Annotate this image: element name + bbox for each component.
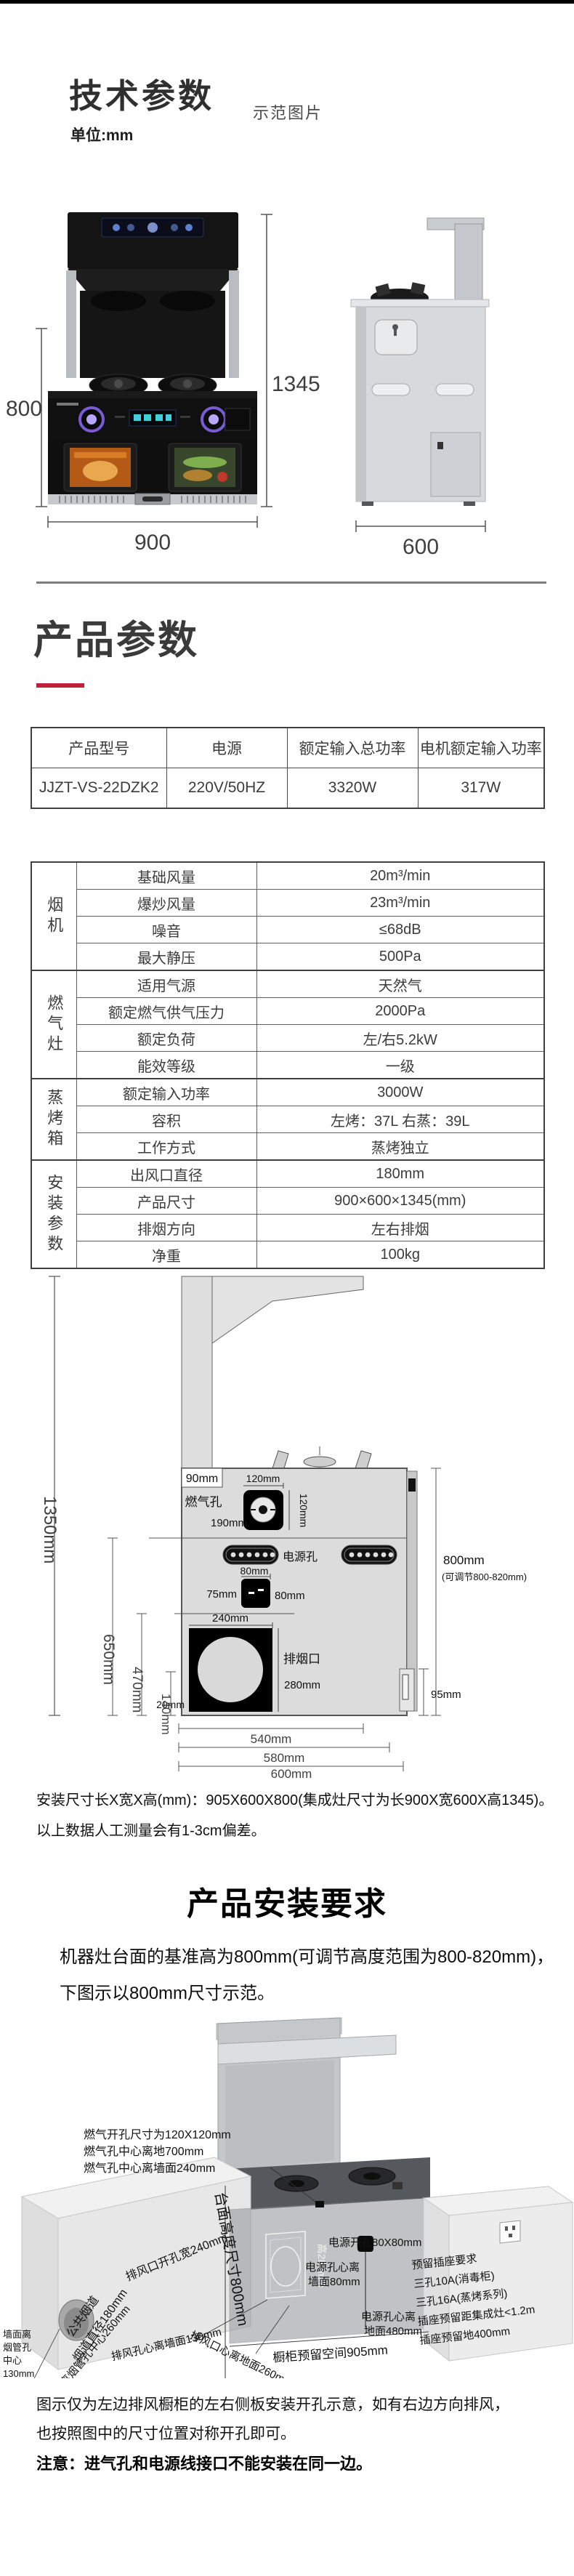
gas-height-label: 120mm [298, 1494, 310, 1528]
dim-label-470: 470mm [129, 1667, 145, 1712]
table-row: JJZT-VS-22DZK2 220V/50HZ 3320W 317W [31, 768, 544, 809]
spec-label: 产品尺寸 [76, 1188, 256, 1215]
base-vent [48, 494, 257, 504]
socket-icon [500, 2221, 520, 2243]
dim-label-650: 650mm [100, 1634, 117, 1685]
wall-flue-3: 中心 [3, 2355, 22, 2366]
col-header: 电机额定输入功率 [418, 728, 544, 768]
power-floor-label-1: 电源孔心离 [361, 2311, 416, 2323]
dim-label-580: 580mm [264, 1751, 305, 1765]
table-header-row: 产品型号 电源 额定输入总功率 电机额定输入功率 [31, 728, 544, 768]
table-row: 烟机 基础风量 20m³/min [31, 862, 544, 890]
table-row: 燃气灶 适用气源 天然气 [31, 970, 544, 998]
gas-note-3: 燃气孔中心离墙面240mm [84, 2162, 215, 2175]
spec-label: 排烟方向 [76, 1215, 256, 1241]
spec-label: 能效等级 [76, 1052, 256, 1079]
install-para-1: 机器灶台面的基准高为800mm(可调节高度范围为800-820mm)， [60, 1942, 554, 1968]
side-view-product-image [351, 218, 489, 506]
page: 技术参数 示范图片 单位:mm [0, 0, 574, 2576]
oven-doors [48, 440, 257, 494]
col-header: 产品型号 [31, 728, 166, 768]
front-view-product-image [48, 212, 257, 504]
table-row: 最大静压500Pa [31, 943, 544, 971]
installation-3d-diagram: 燃气开孔尺寸为120X120mm 燃气孔中心离地700mm 燃气孔中心离墙面24… [0, 2015, 574, 2378]
spec-value: 23m³/min [256, 890, 544, 917]
gas-note-2: 燃气孔中心离地700mm [84, 2145, 203, 2158]
table-row: 噪音≤68dB [31, 917, 544, 943]
spec-value: 天然气 [256, 970, 544, 998]
dim-label-600b: 600mm [271, 1767, 312, 1779]
burner-profile [272, 1446, 371, 1468]
power-right-label: 80mm [275, 1590, 305, 1602]
top-black-bar [0, 0, 574, 4]
page-subtitle: 示范图片 [253, 100, 323, 124]
spec-label: 基础风量 [76, 862, 256, 890]
dim-label-95: 95mm [431, 1689, 461, 1701]
table-row: 额定燃气供气压力2000Pa [31, 998, 544, 1025]
power-hole-label: 电源孔 [283, 1550, 318, 1563]
spec-value: 20m³/min [256, 862, 544, 890]
table-row: 能效等级一级 [31, 1052, 544, 1079]
dim-line-650 [108, 1538, 118, 1715]
gas-note-1: 燃气开孔尺寸为120X120mm [84, 2128, 231, 2141]
spec-label: 额定燃气供气压力 [76, 998, 256, 1025]
col-header: 额定输入总功率 [287, 728, 418, 768]
product-params-title: 产品参数 [33, 608, 199, 665]
col-header: 电源 [166, 728, 287, 768]
counter-height-label: 800mm [443, 1553, 485, 1567]
spec-value: ≤68dB [256, 917, 544, 943]
hood-canopy [212, 1276, 363, 1343]
power-left-label: 75mm [206, 1588, 237, 1601]
dim-line-600 [356, 520, 485, 532]
dim-label-90: 90mm [186, 1473, 218, 1485]
spec-value: 左右排烟 [256, 1215, 544, 1241]
dim-label-600: 600 [403, 535, 439, 559]
spec-value: 900×600×1345(mm) [256, 1188, 544, 1215]
spec-label: 适用气源 [76, 970, 256, 998]
footer-note-2: 也按照图中的尺寸位置对称开孔即可。 [36, 2422, 296, 2444]
category-hood: 烟机 [42, 896, 65, 937]
spec-value: 2000Pa [256, 998, 544, 1025]
spec-value: 蒸烤独立 [256, 1133, 544, 1161]
hood-column [182, 1276, 212, 1468]
spec-value: 一级 [256, 1052, 544, 1079]
wall-flue-4: 130mm [3, 2368, 34, 2378]
model-value: JJZT-VS-22DZK2 [31, 768, 166, 809]
spec-value: 左/右5.2kW [256, 1025, 544, 1052]
power-supply-value: 220V/50HZ [166, 768, 287, 809]
main-spec-table: 产品型号 电源 额定输入总功率 电机额定输入功率 JJZT-VS-22DZK2 … [31, 727, 545, 809]
power-open-label: 电源开孔80X80mm [328, 2237, 421, 2249]
drawing-note-2: 以上数据人工测量会有1-3cm偏差。 [36, 1819, 266, 1840]
footer-warning: 注意：进气孔和电源线接口不能安装在同一边。 [36, 2451, 372, 2474]
table-row: 额定负荷左/右5.2kW [31, 1025, 544, 1052]
spec-value: 500Pa [256, 943, 544, 971]
installation-drawing: 1350mm 90mm 燃气孔 120mm 190mm 120mm [33, 1271, 541, 1779]
red-underline [36, 683, 84, 688]
table-row: 工作方式蒸烤独立 [31, 1133, 544, 1161]
detail-spec-table: 烟机 基础风量 20m³/min 爆炒风量23m³/min 噪音≤68dB 最大… [31, 861, 545, 1269]
dim-label-1345: 1345 [272, 372, 320, 396]
section-divider [36, 581, 546, 584]
table-row: 产品尺寸900×600×1345(mm) [31, 1188, 544, 1215]
table-row: 容积左烤：37L 右蒸：39L [31, 1106, 544, 1133]
dim-label-540: 540mm [251, 1732, 292, 1746]
spec-label: 净重 [76, 1241, 256, 1269]
dim-label-140: 140mm [159, 1694, 173, 1735]
unit-label: 单位:mm [70, 124, 133, 145]
table-row: 安装参数 出风口直径 180mm [31, 1160, 544, 1188]
spec-value: 左烤：37L 右蒸：39L [256, 1106, 544, 1133]
oval-vent-right [341, 1545, 397, 1564]
spec-value: 3000W [256, 1079, 544, 1106]
counter-height-note: (可调节800-820mm) [442, 1571, 527, 1582]
spec-label: 出风口直径 [76, 1160, 256, 1188]
spec-label: 工作方式 [76, 1133, 256, 1161]
spec-value: 180mm [256, 1160, 544, 1188]
spec-label: 容积 [76, 1106, 256, 1133]
table-row: 爆炒风量23m³/min [31, 890, 544, 917]
total-power-value: 3320W [287, 768, 418, 809]
power-wall-label-2: 墙面80mm [308, 2276, 360, 2288]
category-install-params: 安装参数 [42, 1174, 65, 1255]
gas-left-label: 190mm [211, 1517, 247, 1529]
exhaust-width-label: 240mm [212, 1612, 248, 1625]
power-top-label: 80mm [240, 1565, 269, 1577]
product-photos-figure: 1345 800 900 600 [0, 196, 574, 574]
cabinet-space-label: 橱柜预留空间905mm [272, 2343, 389, 2365]
oval-vent-left [223, 1545, 278, 1564]
spec-label: 额定负荷 [76, 1025, 256, 1052]
spec-label: 爆炒风量 [76, 890, 256, 917]
wall-flue-2: 烟管孔 [3, 2342, 31, 2353]
category-gas-stove: 燃气灶 [42, 994, 65, 1055]
motor-power-value: 317W [418, 768, 544, 809]
spec-label: 额定输入功率 [76, 1079, 256, 1106]
exhaust-height-label: 280mm [284, 1679, 320, 1691]
dim-line-1345 [261, 214, 272, 507]
table-row: 蒸烤箱 额定输入功率 3000W [31, 1079, 544, 1106]
drawing-note-1: 安装尺寸长X宽X高(mm)：905X600X800(集成灶尺寸为长900X宽60… [36, 1788, 553, 1809]
table-row: 净重100kg [31, 1241, 544, 1269]
install-para-2: 下图示以800mm尺寸示范。 [60, 1979, 275, 2004]
install-requirements-title: 产品安装要求 [0, 1877, 574, 1924]
dim-label-1350: 1350mm [40, 1496, 60, 1563]
power-hole [241, 1579, 270, 1608]
power-floor-label-2: 地面480mm [364, 2325, 422, 2338]
dim-line-900 [48, 516, 257, 528]
spec-label: 最大静压 [76, 943, 256, 971]
table-row: 排烟方向左右排烟 [31, 1215, 544, 1241]
dim-label-800: 800 [6, 397, 42, 421]
exhaust-label: 排烟口 [283, 1652, 320, 1666]
spec-label: 噪音 [76, 917, 256, 943]
control-panel [48, 398, 257, 440]
dim-line-800-right [431, 1468, 441, 1715]
gas-hole-label: 燃气孔 [185, 1495, 222, 1509]
power-wall-label-1: 电源孔心离 [305, 2261, 360, 2274]
dim-line-95 [419, 1669, 429, 1715]
gas-width-label: 120mm [246, 1473, 280, 1484]
category-steam-oven: 蒸烤箱 [42, 1089, 65, 1150]
footer-note-1: 图示仅为左边排风橱柜的左右侧板安装开孔示意，如有右边方向排风， [36, 2393, 509, 2415]
page-title: 技术参数 [69, 70, 214, 118]
wall-flue-1: 墙面离 [3, 2329, 31, 2340]
dim-label-900: 900 [134, 531, 171, 555]
spec-value: 100kg [256, 1241, 544, 1269]
